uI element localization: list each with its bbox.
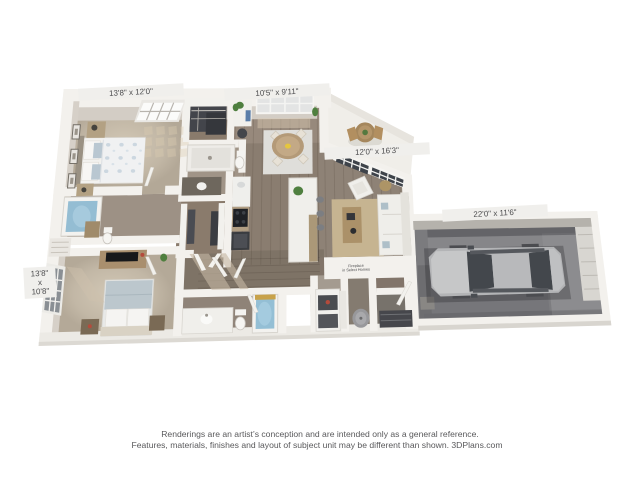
svg-text:x: x: [38, 278, 42, 287]
svg-text:Features, materials, finishes: Features, materials, finishes and layout…: [132, 440, 503, 450]
svg-text:Renderings are an artist’s con: Renderings are an artist’s conception an…: [161, 429, 479, 439]
svg-text:10'8": 10'8": [31, 287, 49, 297]
svg-text:13'8": 13'8": [30, 269, 48, 279]
